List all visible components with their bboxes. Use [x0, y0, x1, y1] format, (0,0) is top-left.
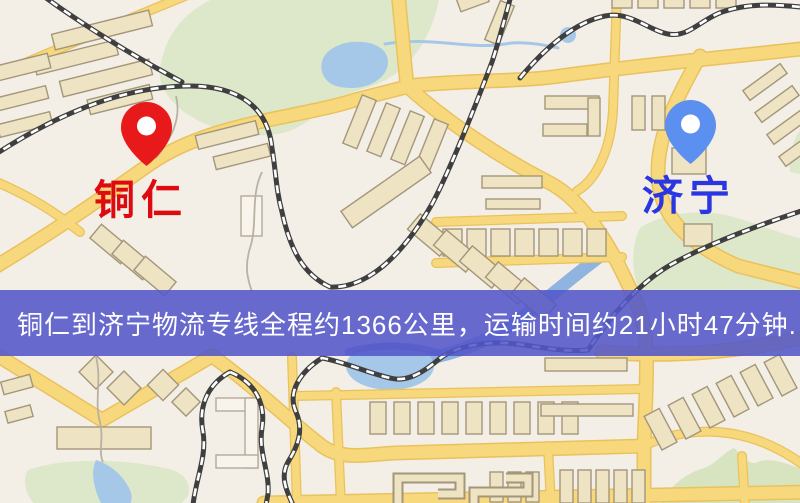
tongren-label: 铜仁	[86, 180, 196, 221]
route-info-banner: 铜仁到济宁物流专线全程约1366公里，运输时间约21小时47分钟.	[0, 290, 800, 356]
map-screenshot: 铜仁 济宁 铜仁到济宁物流专线全程约1366公里，运输时间约21小时47分钟.	[0, 0, 800, 503]
map-canvas	[0, 0, 800, 503]
route-info-text: 铜仁到济宁物流专线全程约1366公里，运输时间约21小时47分钟.	[17, 305, 797, 342]
jining-label: 济宁	[630, 176, 748, 217]
